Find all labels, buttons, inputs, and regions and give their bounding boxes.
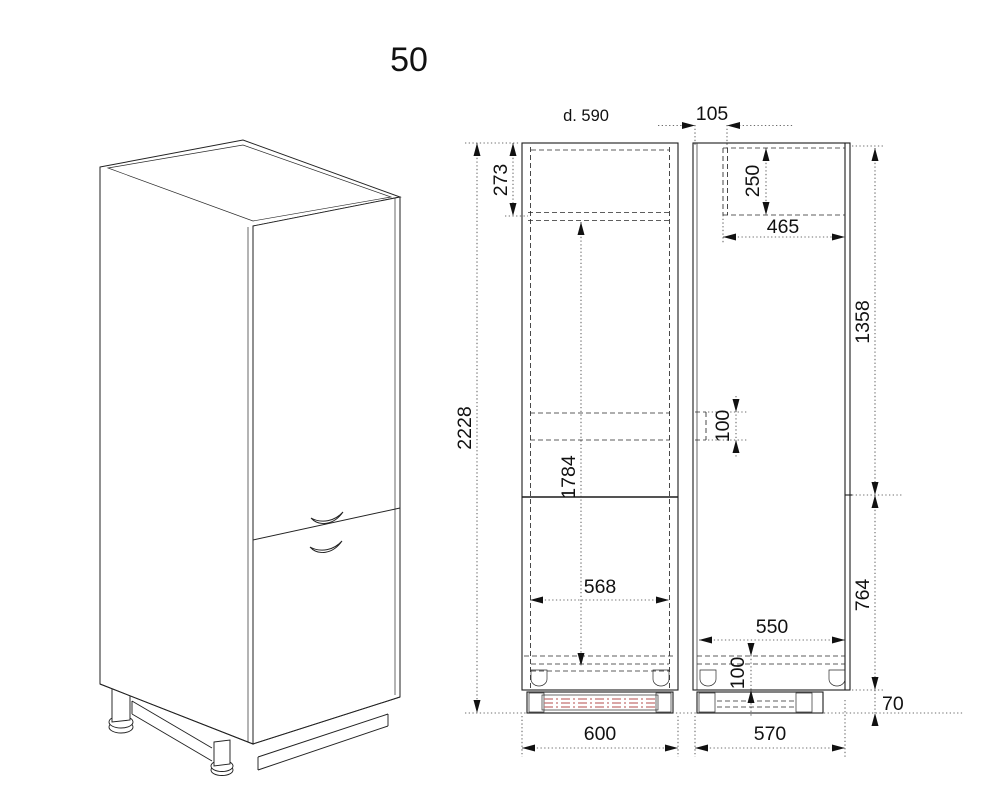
dim-text-plinth-height: 70: [882, 693, 904, 715]
dim-interior-height-1784: 1784: [558, 222, 585, 666]
side-plinth: [697, 692, 823, 713]
dim-text-side-notch: 100: [712, 410, 734, 443]
dim-top-recess-depth-465: 465: [723, 215, 845, 243]
dim-lower-section-764: 764: [852, 495, 883, 690]
iso-leg-front: [211, 740, 233, 776]
side-front-leg: [700, 670, 716, 686]
cabinet-drawing-svg: 50: [0, 0, 1000, 800]
dim-text-top-recess-height: 250: [742, 165, 764, 198]
dim-text-interior-height: 1784: [558, 455, 580, 499]
dim-text-overall-width: 600: [584, 723, 617, 745]
dim-text-lower-section: 764: [852, 579, 874, 612]
front-outline: [522, 143, 678, 690]
front-left-leg: [531, 670, 547, 686]
dim-text-interior-depth: 550: [756, 616, 789, 638]
dim-total-height-2228: 2228: [454, 143, 519, 713]
dim-interior-depth-550: 550: [699, 616, 845, 644]
dim-text-front-recess: 105: [696, 103, 729, 125]
front-plinth: [527, 692, 673, 713]
iso-carcass: [100, 140, 400, 744]
depth-note-label: d. 590: [563, 107, 609, 125]
dim-text-upper-section: 1358: [852, 300, 874, 343]
dim-text-top-section: 273: [490, 164, 512, 197]
dim-overall-width-600: 600: [522, 716, 678, 757]
dim-side-notch-100: 100: [708, 396, 747, 458]
dim-top-recess-height-250: 250: [742, 148, 770, 215]
dim-upper-section-1358: 1358: [852, 146, 902, 495]
dim-text-total-height: 2228: [454, 406, 476, 449]
dim-text-bottom-shelf: 100: [727, 657, 749, 690]
side-back-leg: [829, 670, 845, 686]
front-right-leg: [653, 670, 669, 686]
dim-text-top-recess-depth: 465: [767, 216, 800, 238]
drawing-title: 50: [390, 41, 428, 79]
side-dimensions: 105 250 465 1358: [658, 103, 904, 757]
dim-bottom-shelf-100: 100: [727, 643, 755, 716]
dim-text-overall-depth: 570: [754, 723, 787, 745]
dim-text-interior-width: 568: [584, 576, 617, 598]
isometric-view: [100, 140, 400, 776]
dim-plinth-height-70: 70: [872, 690, 904, 726]
dim-interior-width-568: 568: [530, 576, 669, 604]
front-dimensions: d. 590 2228 273 1784 568: [454, 107, 678, 757]
technical-drawing-page: 50: [0, 0, 1000, 800]
front-view: [522, 143, 678, 713]
